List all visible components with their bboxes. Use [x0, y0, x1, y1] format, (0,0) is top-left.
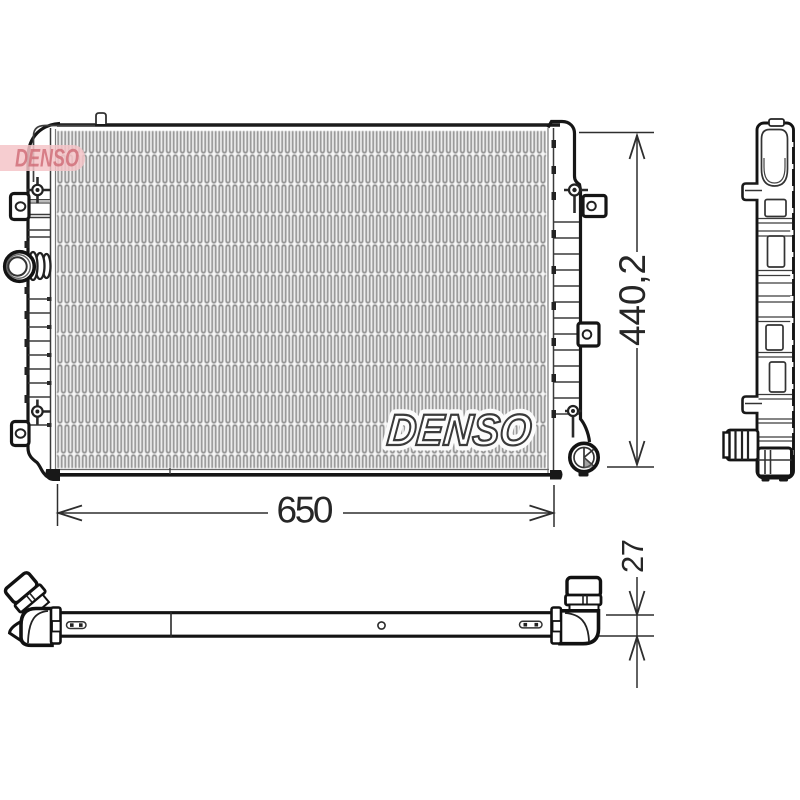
svg-text:DENSO: DENSO — [15, 145, 79, 173]
svg-text:27: 27 — [615, 539, 650, 573]
svg-text:650: 650 — [277, 490, 334, 531]
svg-text:DENSO: DENSO — [385, 406, 533, 455]
svg-text:440,2: 440,2 — [612, 254, 653, 346]
